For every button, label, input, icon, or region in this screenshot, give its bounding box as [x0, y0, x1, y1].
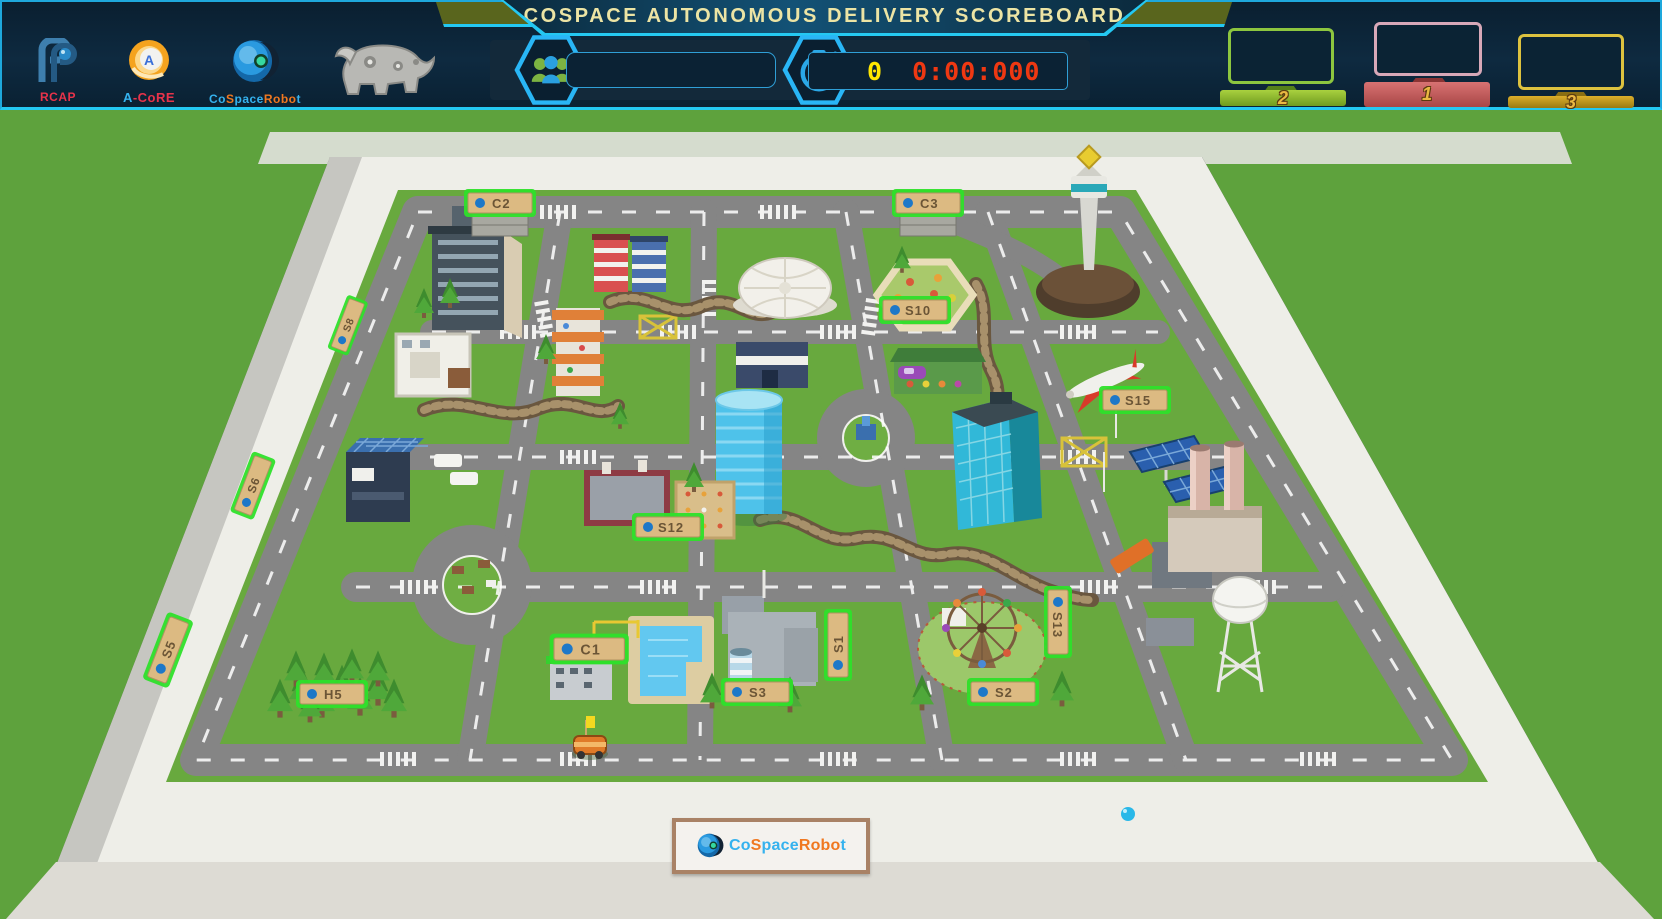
timer-value: 0:00:000: [912, 57, 1040, 86]
marker-s2: S2: [967, 678, 1039, 706]
svg-text:S13: S13: [1050, 612, 1065, 638]
rcap-logo-icon: [32, 38, 84, 84]
billboard-logo-icon: [696, 832, 724, 860]
marker-s10: S10: [879, 296, 951, 324]
market-stand: [890, 348, 986, 394]
score-timer-box: 0 0:00:000: [808, 52, 1068, 90]
marker-s12: S12: [632, 513, 704, 541]
police-station: [736, 342, 808, 388]
cospacerobot-billboard: CoSpaceRobot: [672, 818, 870, 874]
svg-text:S10: S10: [905, 303, 931, 318]
title-banner: COSPACE AUTONOMOUS DELIVERY SCOREBOARD: [501, 0, 1149, 36]
podium-monitor-1: [1374, 22, 1482, 76]
svg-text:A: A: [144, 52, 154, 68]
white-van: [434, 454, 462, 467]
svg-text:S1: S1: [831, 635, 846, 653]
acore-logo-label: A-CoRE: [112, 90, 186, 105]
marker-c3: C3: [892, 189, 964, 217]
elephant-robot-logo: [324, 32, 440, 107]
podium-rank-2: 2: [1278, 88, 1288, 109]
podium-2: 2: [1220, 90, 1346, 106]
white-van: [450, 472, 478, 485]
marker-c1: C1: [550, 634, 629, 665]
acore-logo: A A-CoRE: [112, 38, 186, 105]
container-truck: [1146, 618, 1194, 646]
scoreboard-header: COSPACE AUTONOMOUS DELIVERY SCOREBOARD R…: [0, 0, 1662, 110]
page-title: COSPACE AUTONOMOUS DELIVERY SCOREBOARD: [504, 0, 1146, 33]
podium-3: 3: [1508, 96, 1634, 108]
robot-flag: [586, 716, 595, 728]
svg-text:H5: H5: [324, 687, 343, 702]
rcap-logo-label: RCAP: [26, 90, 90, 104]
svg-text:C1: C1: [580, 643, 600, 659]
svg-text:S15: S15: [1125, 393, 1151, 408]
shop-row: [552, 308, 604, 396]
acore-logo-icon: A: [125, 38, 173, 84]
glass-skyscraper: [952, 392, 1042, 530]
city-map-scene: C2 C3 S10 S15 S12 C1 S3 S2 H5 S1 S13: [0, 110, 1662, 919]
cospacerobot-logo: CoSpaceRobot: [200, 38, 310, 106]
marker-s1: S1: [824, 609, 852, 681]
svg-text:S2: S2: [995, 685, 1013, 700]
cospacerobot-logo-label: CoSpaceRobot: [200, 92, 310, 106]
svg-text:S12: S12: [658, 520, 684, 535]
billboard-brand-text: CoSpaceRobot: [729, 837, 846, 855]
marker-c2: C2: [464, 189, 536, 217]
svg-text:C3: C3: [920, 196, 939, 211]
podium-monitor-3: [1518, 34, 1624, 90]
podium-monitor-2: [1228, 28, 1334, 84]
school-building: [396, 334, 470, 396]
team-name-input[interactable]: [566, 52, 776, 88]
marker-s3: S3: [721, 678, 793, 706]
elephant-robot-icon: [326, 32, 438, 102]
status-panel: 0 0:00:000: [490, 40, 1090, 100]
podium-rank-1: 1: [1422, 84, 1432, 105]
marker-s13: S13: [1044, 586, 1072, 658]
blue-ball: [1121, 807, 1135, 821]
marker-s15: S15: [1099, 386, 1171, 414]
score-value: 0: [867, 57, 882, 86]
marker-h5: H5: [296, 680, 368, 708]
svg-text:S3: S3: [749, 685, 767, 700]
rcap-logo: RCAP: [26, 38, 90, 104]
cospacerobot-logo-icon: [230, 38, 280, 86]
podium-1: 1: [1364, 82, 1490, 107]
svg-text:C2: C2: [492, 196, 511, 211]
